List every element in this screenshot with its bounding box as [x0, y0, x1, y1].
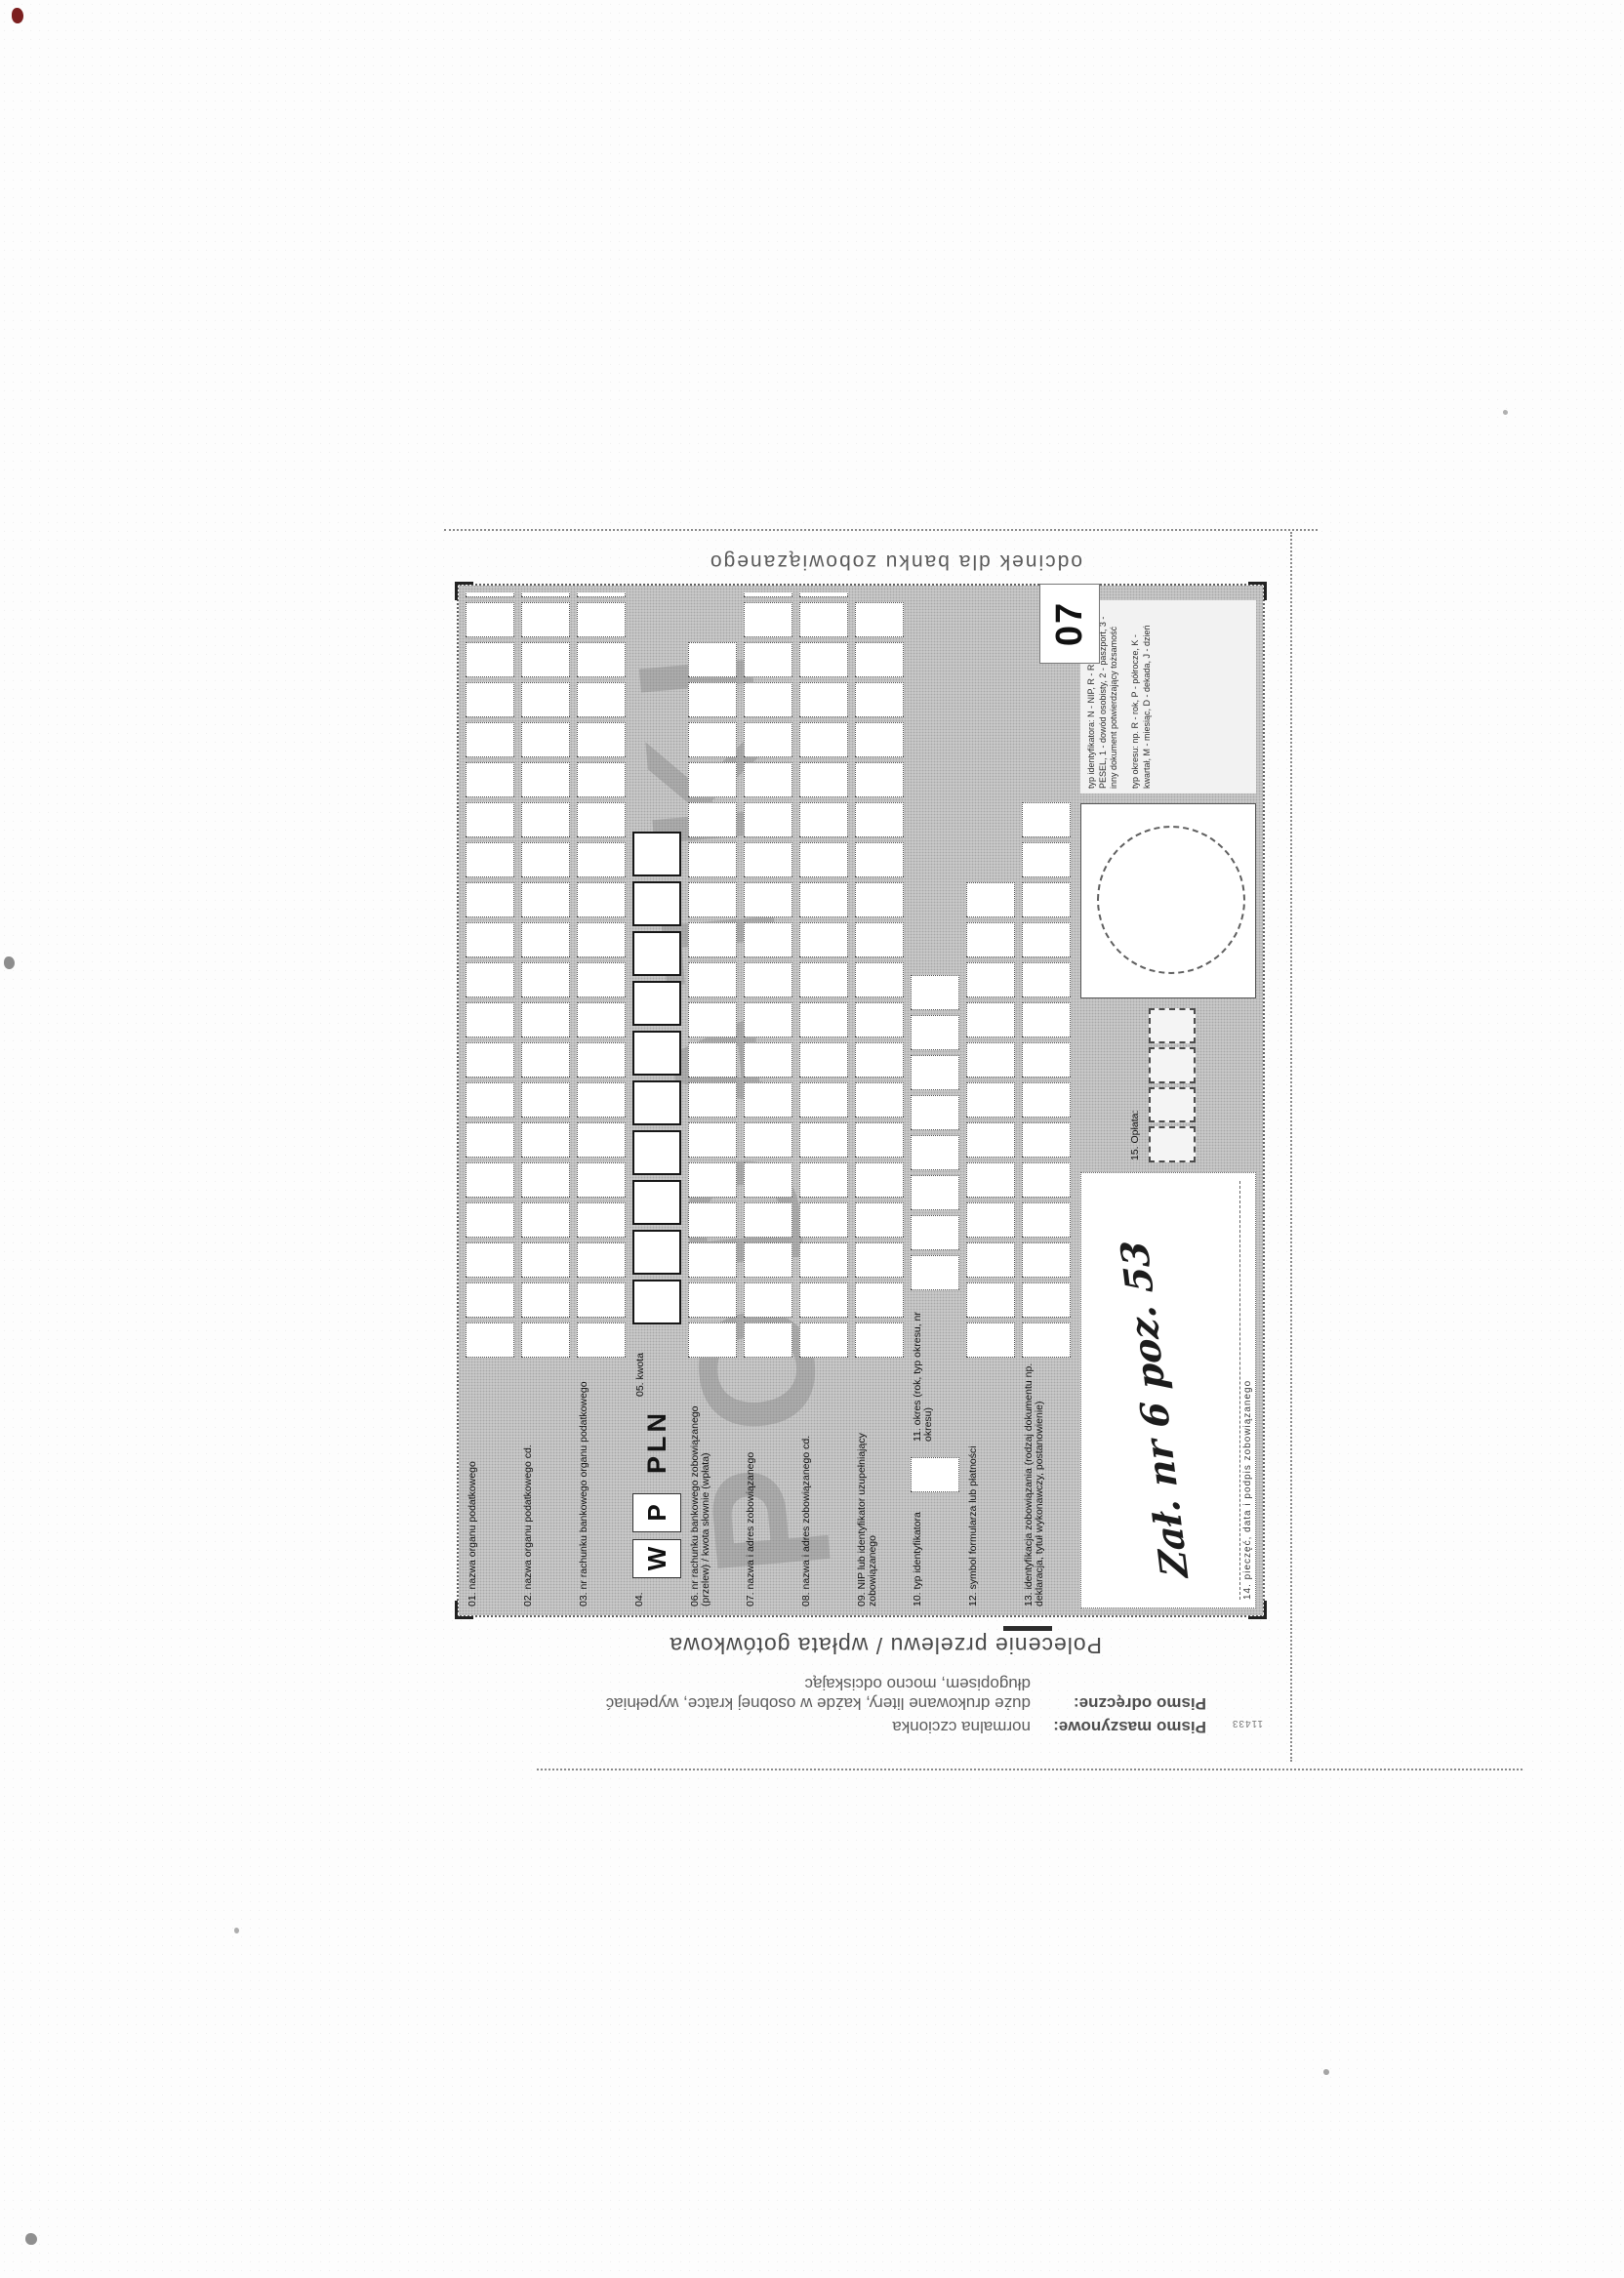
char-box: [744, 592, 792, 597]
char-box: [466, 682, 514, 717]
field-label: 12. symbol formularza lub płatności: [966, 1358, 1015, 1608]
stamp-date-signature-area: Zał. nr 6 poz. 53 14. pieczęć, data i po…: [1080, 1172, 1256, 1608]
char-box: [911, 1015, 959, 1050]
char-box: [577, 1042, 626, 1078]
char-box: [1149, 1127, 1196, 1163]
char-box: [688, 722, 737, 757]
char-box: [744, 802, 792, 837]
char-box: [521, 1002, 570, 1037]
scan-speck: [12, 8, 23, 23]
char-box: [466, 922, 514, 957]
char-box: [744, 1322, 792, 1358]
char-box: [855, 1202, 904, 1238]
char-box: [1022, 922, 1071, 957]
char-box: [1022, 962, 1071, 997]
field-label: 02. nazwa organu podatkowego cd.: [521, 1358, 570, 1608]
char-box: [855, 602, 904, 637]
char-box: [466, 1042, 514, 1078]
row-08: 08. nazwa i adres zobowiązanego cd.: [799, 592, 848, 1608]
char-box: [744, 722, 792, 757]
char-box: [855, 1322, 904, 1358]
scan-speck: [1323, 2069, 1329, 2075]
char-box: [521, 802, 570, 837]
char-box: [521, 842, 570, 877]
char-box: [799, 592, 848, 597]
stamp-circle: [1097, 826, 1245, 974]
char-box: [744, 922, 792, 957]
char-box: [799, 1082, 848, 1118]
char-box: [966, 1122, 1015, 1158]
char-boxes: [911, 975, 959, 1290]
char-box: [632, 1130, 681, 1175]
char-box: [855, 722, 904, 757]
char-box: [466, 802, 514, 837]
currency-label: PLN: [632, 1397, 681, 1486]
char-box: [799, 1242, 848, 1278]
row-06: 06. nr rachunku bankowego zobowiązanego …: [688, 592, 737, 1608]
char-box: [521, 762, 570, 797]
char-box: [466, 962, 514, 997]
form-title: Polecenie przelewu / wpłata gotówkowa: [669, 1632, 1102, 1658]
char-boxes: [799, 592, 848, 1358]
char-box: [855, 922, 904, 957]
char-box: [966, 962, 1015, 997]
char-box: [1022, 1082, 1071, 1118]
wplata-checkbox: W: [632, 1539, 681, 1578]
char-box: [1022, 1202, 1071, 1238]
char-box: [521, 1202, 570, 1238]
legend-block: typ identyfikatora: N - NIP, R - REGON, …: [1080, 600, 1256, 793]
char-box: [1022, 802, 1071, 837]
field-label: 01. nazwa organu podatkowego: [466, 1358, 514, 1608]
char-box: [799, 1282, 848, 1318]
char-box: [911, 1055, 959, 1090]
char-box: [911, 975, 959, 1010]
char-box: [466, 1082, 514, 1118]
char-box: [799, 1042, 848, 1078]
char-box: [632, 1031, 681, 1076]
char-box: [466, 592, 514, 597]
char-box: [466, 842, 514, 877]
char-box: [577, 592, 626, 597]
scan-speck: [4, 956, 15, 969]
char-box: [1022, 1322, 1071, 1358]
char-box: [855, 1162, 904, 1198]
bottom-strip: Zał. nr 6 poz. 53 14. pieczęć, data i po…: [1080, 592, 1256, 1608]
char-box: [577, 1282, 626, 1318]
char-box: [521, 1042, 570, 1078]
char-box: [1022, 1242, 1071, 1278]
char-box: [799, 762, 848, 797]
char-box: [466, 1162, 514, 1198]
char-box: [521, 1242, 570, 1278]
instruction-text: duże drukowane litery, każde w osobnej k…: [591, 1674, 1031, 1713]
char-box: [911, 1215, 959, 1250]
field-label: 08. nazwa i adres zobowiązanego cd.: [799, 1358, 848, 1608]
char-box: [688, 1042, 737, 1078]
char-box: [577, 1202, 626, 1238]
char-box: [577, 1002, 626, 1037]
char-box: [577, 642, 626, 677]
char-box: [688, 1122, 737, 1158]
row-13: 13. identyfikacja zobowiązania (rodzaj d…: [1022, 592, 1071, 1608]
char-box: [911, 1457, 959, 1492]
char-box: [744, 682, 792, 717]
char-box: [688, 802, 737, 837]
char-box: [632, 981, 681, 1026]
field-label: 06. nr rachunku bankowego zobowiązanego …: [688, 1358, 737, 1608]
char-box: [466, 762, 514, 797]
char-box: [855, 1122, 904, 1158]
char-box: [466, 1002, 514, 1037]
scanned-page: Pismo maszynowe: normalna czcionka Pismo…: [0, 0, 1624, 2278]
scan-speck: [234, 1928, 239, 1933]
char-box: [521, 962, 570, 997]
char-box: [577, 962, 626, 997]
char-box: [688, 682, 737, 717]
char-box: [744, 1002, 792, 1037]
row-02: 02. nazwa organu podatkowego cd.: [521, 592, 570, 1608]
char-box: [855, 1282, 904, 1318]
char-box: [521, 882, 570, 917]
char-box: [632, 1180, 681, 1225]
char-box: [577, 1082, 626, 1118]
char-box: [632, 931, 681, 976]
char-box: [744, 882, 792, 917]
field-label: 09. NIP lub identyfikator uzupełniający …: [855, 1358, 904, 1608]
char-box: [1149, 1008, 1196, 1044]
char-box: [744, 1082, 792, 1118]
char-box: [744, 762, 792, 797]
char-box: [855, 682, 904, 717]
char-box: [855, 1242, 904, 1278]
instruction-label: Pismo odręczne:: [1031, 1674, 1206, 1713]
char-box: [521, 1322, 570, 1358]
char-box: [466, 642, 514, 677]
field-label: 15. Opłata:: [1129, 1008, 1141, 1160]
char-box: [855, 1002, 904, 1037]
corner-number: 07: [1039, 584, 1100, 664]
char-box: [466, 1122, 514, 1158]
char-box: [966, 922, 1015, 957]
char-box: [577, 882, 626, 917]
char-box: [688, 762, 737, 797]
char-box: [577, 1122, 626, 1158]
char-boxes: [744, 592, 792, 1358]
char-box: [855, 962, 904, 997]
fee-area: 15. Opłata:: [1080, 1008, 1256, 1162]
char-box: [855, 642, 904, 677]
char-boxes: [521, 592, 570, 1358]
field-label: 14. pieczęć, data i podpis zobowiązanego: [1239, 1181, 1253, 1600]
char-box: [577, 842, 626, 877]
field-label: 13. identyfikacja zobowiązania (rodzaj d…: [1022, 1358, 1071, 1608]
field-label: 11. okres (rok, typ okresu, nr okresu): [911, 1290, 959, 1444]
char-box: [688, 1162, 737, 1198]
char-box: [1022, 1122, 1071, 1158]
char-box: [855, 1082, 904, 1118]
row-12: 12. symbol formularza lub płatności: [966, 592, 1015, 1608]
char-box: [911, 1095, 959, 1130]
char-box: [1022, 1042, 1071, 1078]
char-box: [577, 1242, 626, 1278]
char-box: [1149, 1048, 1196, 1084]
char-box: [799, 1122, 848, 1158]
char-box: [577, 682, 626, 717]
char-box: [466, 1282, 514, 1318]
row-09: 09. NIP lub identyfikator uzupełniający …: [855, 592, 904, 1608]
char-box: [855, 882, 904, 917]
char-box: [855, 802, 904, 837]
char-box: [744, 1162, 792, 1198]
char-box: [966, 1082, 1015, 1118]
char-box: [632, 1230, 681, 1275]
char-box: [966, 882, 1015, 917]
char-box: [744, 1202, 792, 1238]
filling-instructions: Pismo maszynowe: normalna czcionka Pismo…: [523, 1670, 1206, 1736]
char-box: [688, 962, 737, 997]
char-box: [577, 762, 626, 797]
char-box: [799, 922, 848, 957]
char-box: [521, 1282, 570, 1318]
field-label: 07. nazwa i adres zobowiązanego: [744, 1358, 792, 1608]
char-box: [1022, 1002, 1071, 1037]
char-box: [632, 1280, 681, 1324]
perforation-line-top: [444, 529, 1318, 531]
char-box: [799, 1202, 848, 1238]
char-box: [577, 1322, 626, 1358]
char-box: [966, 1242, 1015, 1278]
char-box: [855, 842, 904, 877]
char-boxes: [688, 642, 737, 1358]
counterfoil-caption: odcinek dla banku zobowiązanego: [709, 549, 1082, 573]
char-box: [521, 682, 570, 717]
char-box: [521, 642, 570, 677]
char-box: [744, 842, 792, 877]
char-box: [744, 1282, 792, 1318]
char-boxes: [855, 602, 904, 1358]
char-box: [466, 1202, 514, 1238]
char-box: [799, 722, 848, 757]
instruction-line: Pismo odręczne: duże drukowane litery, k…: [523, 1674, 1206, 1713]
char-box: [466, 882, 514, 917]
char-box: [466, 602, 514, 637]
legend-typ-okresu: typ okresu: np. R - rok, P - półrocze, K…: [1130, 605, 1153, 789]
char-box: [799, 802, 848, 837]
char-box: [744, 1242, 792, 1278]
char-box: [466, 1242, 514, 1278]
char-box: [855, 762, 904, 797]
char-boxes: [966, 882, 1015, 1358]
field-label: 03. nr rachunku bankowego organu podatko…: [577, 1358, 626, 1608]
fee-boxes: [1149, 1008, 1196, 1162]
char-boxes: [911, 1457, 959, 1492]
char-box: [688, 1082, 737, 1118]
row-07: 07. nazwa i adres zobowiązanego: [744, 592, 792, 1608]
char-box: [744, 962, 792, 997]
perforation-line-bottom: [537, 1769, 1522, 1770]
char-box: [911, 1175, 959, 1210]
char-box: [966, 1202, 1015, 1238]
char-box: [688, 922, 737, 957]
handwriting-note: Zał. nr 6 poz. 53: [1112, 1241, 1198, 1577]
row-04-05-kwota: 04. W P PLN 05. kwota: [632, 592, 681, 1608]
char-box: [521, 602, 570, 637]
char-box: [799, 602, 848, 637]
char-box: [688, 1322, 737, 1358]
instruction-line: Pismo maszynowe: normalna czcionka: [523, 1717, 1206, 1736]
rotated-form-sheet: Pismo maszynowe: normalna czcionka Pismo…: [450, 542, 1270, 1762]
char-box: [966, 1322, 1015, 1358]
char-box: [744, 602, 792, 637]
char-box: [799, 1322, 848, 1358]
char-box: [1149, 1087, 1196, 1123]
char-box: [632, 1080, 681, 1125]
char-box: [688, 882, 737, 917]
scan-speck: [25, 2233, 37, 2245]
row-10-11: 10. typ identyfikatora 11. okres (rok, t…: [911, 592, 959, 1608]
char-box: [799, 682, 848, 717]
char-box: [1022, 1282, 1071, 1318]
char-box: [577, 802, 626, 837]
przelew-checkbox: P: [632, 1493, 681, 1532]
char-box: [521, 1082, 570, 1118]
field-label: 10. typ identyfikatora: [911, 1492, 959, 1608]
char-box: [688, 642, 737, 677]
form-rows: 01. nazwa organu podatkowego 02. nazwa o…: [466, 592, 1077, 1608]
char-box: [911, 1255, 959, 1290]
char-box: [744, 1122, 792, 1158]
char-box: [1022, 1162, 1071, 1198]
kwota-boxes: [632, 832, 681, 1324]
char-box: [577, 722, 626, 757]
char-box: [799, 882, 848, 917]
char-box: [799, 962, 848, 997]
char-box: [744, 1042, 792, 1078]
char-box: [1022, 882, 1071, 917]
row-01: 01. nazwa organu podatkowego: [466, 592, 514, 1608]
char-box: [688, 1002, 737, 1037]
char-box: [799, 842, 848, 877]
char-boxes: [466, 592, 514, 1358]
char-box: [855, 1042, 904, 1078]
char-box: [688, 1202, 737, 1238]
print-code: 11433: [1232, 1718, 1263, 1729]
char-boxes: [577, 592, 626, 1358]
char-box: [466, 722, 514, 757]
char-box: [799, 642, 848, 677]
payment-form: PODATKI 01. nazwa organu podatkowego 02.…: [459, 586, 1263, 1615]
char-box: [577, 602, 626, 637]
char-box: [521, 1122, 570, 1158]
scan-speck: [1503, 410, 1508, 415]
char-box: [632, 881, 681, 926]
char-box: [688, 1282, 737, 1318]
char-boxes: [1022, 802, 1071, 1358]
field-label: 05. kwota: [632, 1324, 681, 1397]
char-box: [744, 642, 792, 677]
char-box: [577, 922, 626, 957]
instruction-text: normalna czcionka: [591, 1717, 1031, 1736]
char-box: [799, 1162, 848, 1198]
char-box: [966, 1282, 1015, 1318]
char-box: [466, 1322, 514, 1358]
field-label: 04.: [632, 1578, 681, 1608]
char-box: [521, 1162, 570, 1198]
char-box: [632, 832, 681, 876]
char-box: [688, 1242, 737, 1278]
char-box: [521, 592, 570, 597]
row-03: 03. nr rachunku bankowego organu podatko…: [577, 592, 626, 1608]
char-box: [911, 1135, 959, 1170]
char-box: [521, 722, 570, 757]
char-box: [799, 1002, 848, 1037]
instruction-label: Pismo maszynowe:: [1031, 1717, 1206, 1736]
char-box: [521, 922, 570, 957]
char-box: [966, 1002, 1015, 1037]
char-box: [688, 842, 737, 877]
char-box: [966, 1042, 1015, 1078]
char-box: [966, 1162, 1015, 1198]
perforation-line-right: [1290, 532, 1292, 1762]
char-box: [577, 1162, 626, 1198]
char-box: [1022, 842, 1071, 877]
stamp-box: [1080, 803, 1256, 998]
